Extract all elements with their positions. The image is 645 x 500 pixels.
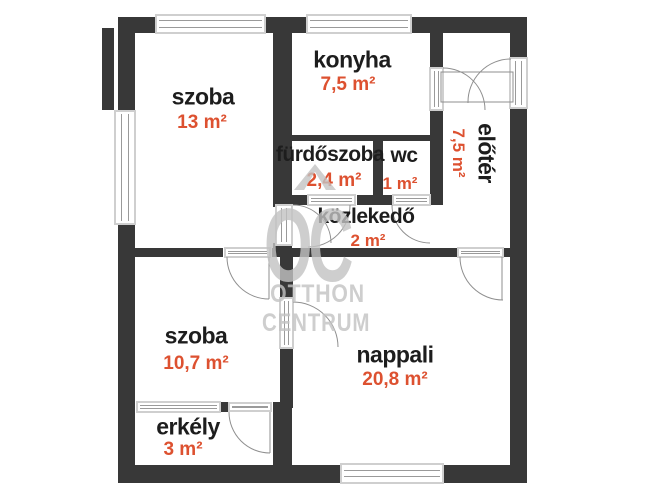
- room-label-erkely: erkély: [156, 414, 220, 441]
- room-area-konyha: 7,5 m²: [321, 74, 376, 96]
- room-area-eloter: 7,5 m²: [448, 128, 468, 177]
- room-area-wc: 1 m²: [383, 174, 418, 194]
- room-label-nappali: nappali: [356, 342, 433, 369]
- room-label-furdoszoba: fürdőszoba: [276, 143, 384, 167]
- room-area-erkely: 3 m²: [163, 439, 202, 461]
- room-label-kozlekedo: közlekedő: [317, 205, 414, 229]
- room-label-konyha: konyha: [313, 47, 391, 74]
- room-area-nappali: 20,8 m²: [362, 369, 427, 391]
- floor-plan: szoba 13 m² konyha 7,5 m² előtér 7,5 m² …: [0, 0, 645, 500]
- room-area-furdoszoba: 2,4 m²: [307, 170, 362, 192]
- room-area-szoba-bottom: 10,7 m²: [163, 353, 228, 375]
- room-label-szoba-top: szoba: [172, 84, 235, 111]
- room-label-szoba-bottom: szoba: [165, 323, 228, 350]
- room-label-eloter: előtér: [473, 123, 500, 183]
- room-label-wc: wc: [390, 144, 417, 168]
- room-area-kozlekedo: 2 m²: [351, 231, 386, 251]
- room-area-szoba-top: 13 m²: [177, 112, 227, 134]
